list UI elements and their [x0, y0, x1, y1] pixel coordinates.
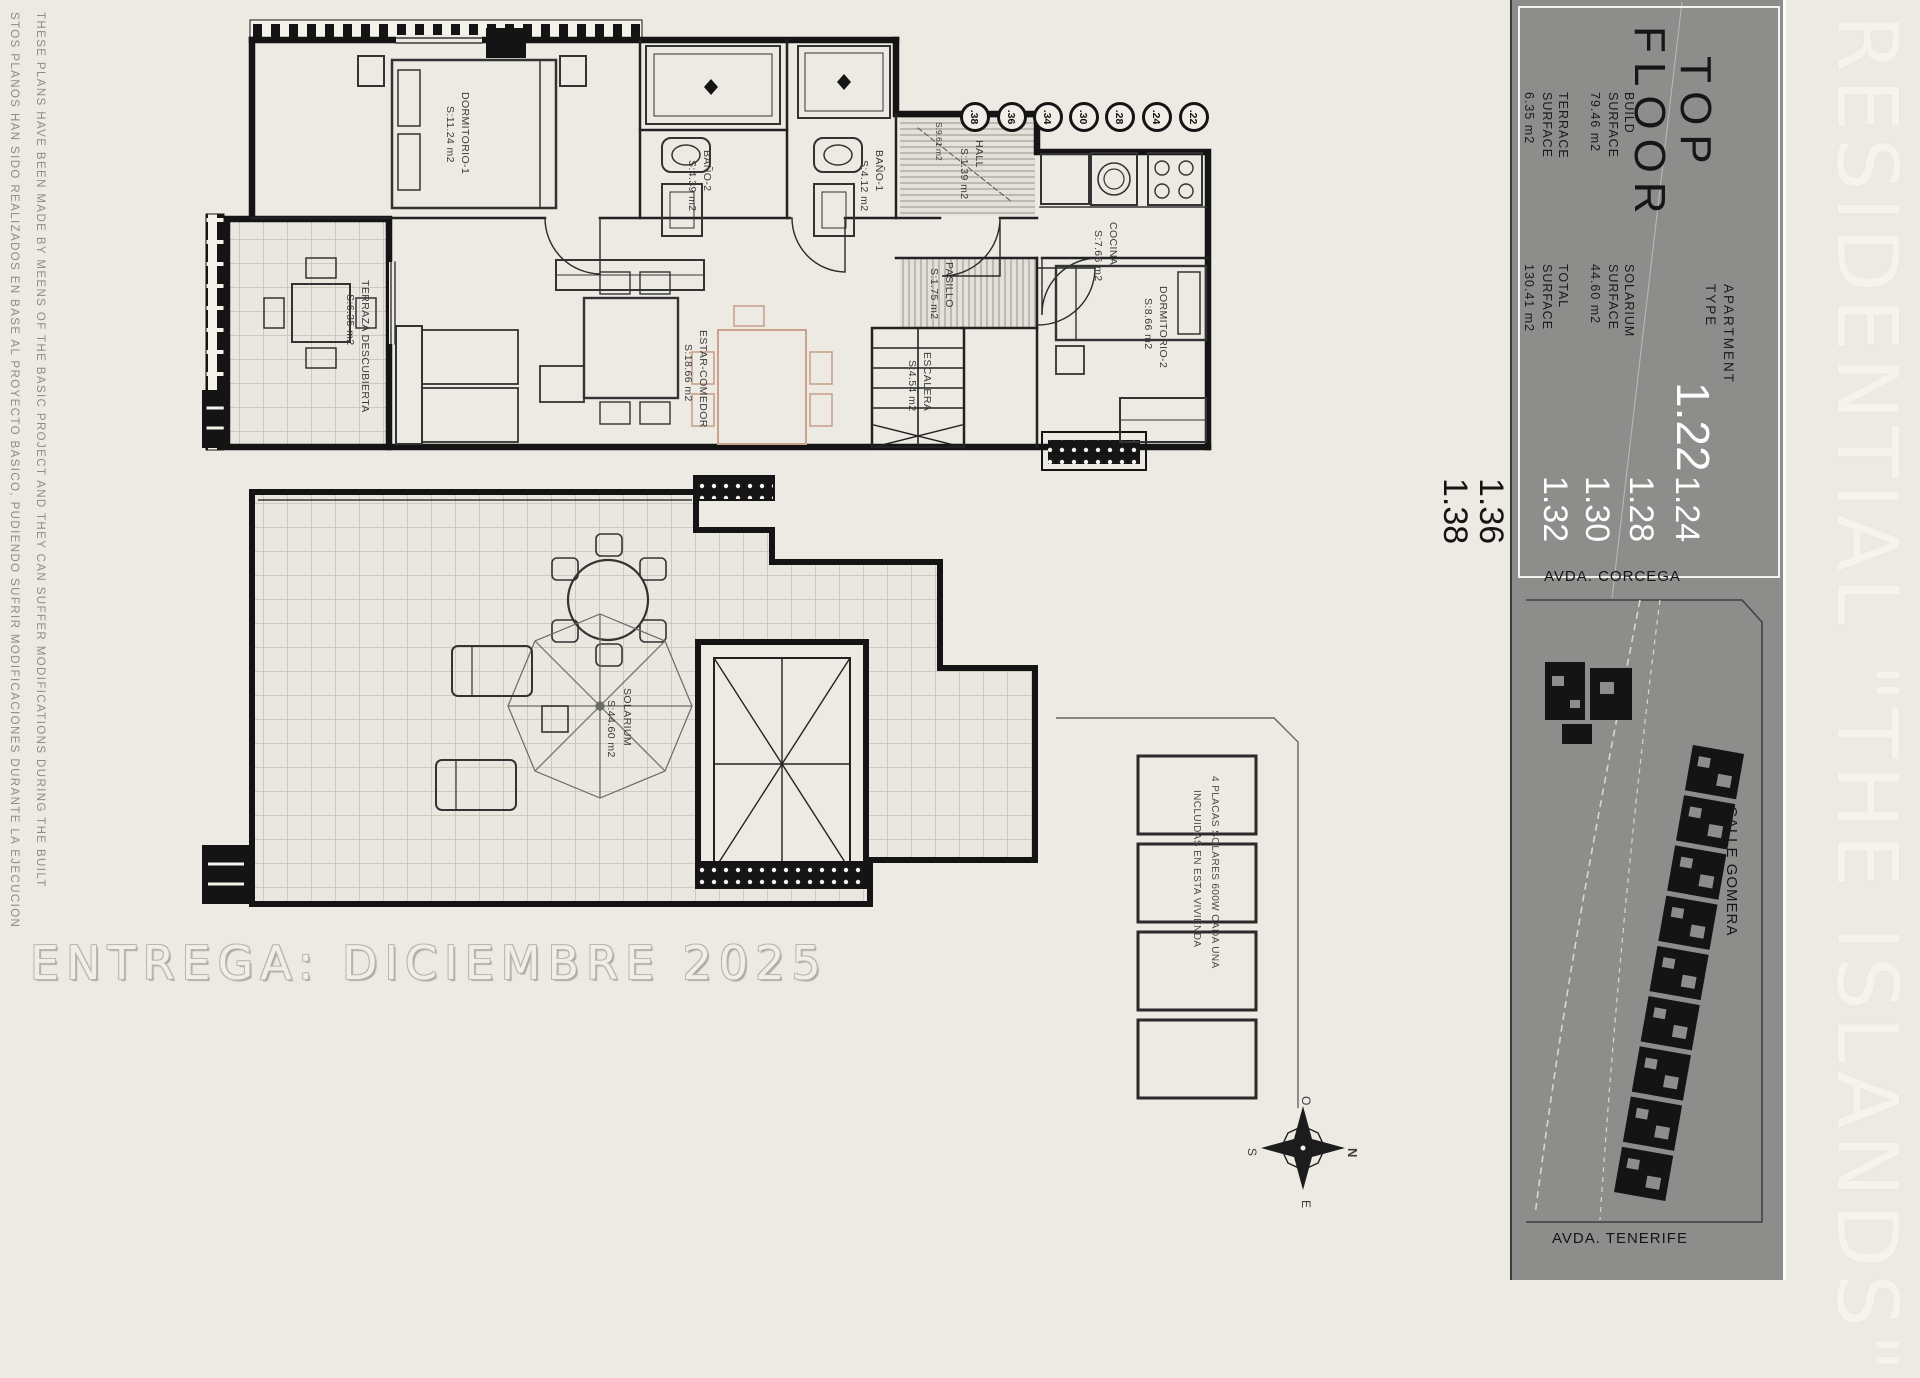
living-furniture: [396, 260, 704, 444]
metric-label: SURFACE: [1606, 92, 1620, 158]
metric-label: SURFACE: [1540, 92, 1554, 158]
room-label: SOLARIUM: [621, 688, 633, 746]
info-box: APARTMENT TYPE TOP FLOOR 1.22 1.24 1.28 …: [1518, 6, 1782, 578]
bed-dormitorio2: [1056, 266, 1206, 442]
room-label: PASILLO: [943, 262, 955, 308]
type-number: 1.28: [1621, 476, 1660, 542]
metric-value: 44.60 m2: [1588, 264, 1602, 324]
room-label: COCINA: [1107, 222, 1119, 265]
type-number: 1.36: [1471, 478, 1510, 544]
kitchen-units: [1040, 153, 1206, 207]
site-buildings-top: [1545, 662, 1632, 744]
apartment-type-label: TYPE: [1703, 284, 1718, 327]
solar-note-line2: INCLUIDAS EN ESTA VIVIENDA: [1191, 790, 1202, 947]
unit-circle-label: .22: [1187, 110, 1199, 125]
type-number: 1.24: [1667, 476, 1706, 542]
compass-e: E: [1299, 1200, 1313, 1208]
level-label: S:9.61 m2: [934, 122, 944, 161]
parasol: [508, 614, 692, 798]
street-label-gomera: CALLE GOMERA: [1723, 806, 1740, 936]
room-label: BAÑO-1: [873, 150, 886, 192]
residential-banner: RESIDENTIAL "THE ISLANDS": [1782, 14, 1916, 1284]
roof-plan: SOLARIUM S:44.60 m2 4 PLACAS SOLARES 600…: [202, 476, 1298, 1108]
bed-dormitorio1: [358, 56, 586, 208]
metric-label: SOLARIUM: [1622, 264, 1636, 337]
room-label: BAÑO-2: [701, 150, 714, 192]
bano1-fixtures: [798, 46, 890, 236]
solar-panel: [1138, 1020, 1256, 1098]
room-area: S:8.66 m2: [1142, 298, 1154, 349]
room-label: DORMITORIO-1: [459, 92, 471, 174]
street-label-corcega: AVDA. CORCEGA: [1544, 568, 1681, 585]
room-area: S:7.66 m2: [1092, 230, 1104, 281]
metric-label: SURFACE: [1540, 264, 1554, 330]
disclaimer-spanish: STOS PLANOS HAN SIDO REALIZADOS EN BASE …: [8, 12, 20, 882]
floor-title-line1: TOP: [1670, 56, 1720, 173]
type-number-primary: 1.22: [1666, 382, 1720, 472]
bano2-fixtures: [646, 46, 780, 236]
unit-circle-label: .30: [1077, 110, 1089, 125]
type-number: 1.30: [1577, 476, 1616, 542]
chimney-block: [486, 28, 526, 58]
room-label: ESTAR-COMEDOR: [697, 330, 709, 428]
metric-label: TERRACE: [1556, 92, 1570, 159]
unit-circle-label: .24: [1150, 110, 1162, 125]
metric-value: 130.41 m2: [1522, 264, 1536, 332]
top-floor-plan: .38 .36 .34 .30 .28 .24 .22 DORMITORIO-1…: [202, 20, 1208, 470]
solar-note-line1: 4 PLACAS SOLARES 600W CADA UNA: [1209, 776, 1220, 969]
stair-head-band: [694, 476, 774, 500]
room-area: S:4.12 m2: [858, 160, 870, 211]
solarium-floor: [252, 492, 1035, 904]
delivery-date: ENTREGA: DICIEMBRE 2025: [30, 936, 828, 990]
room-area: S:1.75 m2: [928, 268, 940, 319]
type-numbers-black: 1.36 1.38: [1438, 478, 1510, 573]
unit-circle-label: .34: [1041, 110, 1053, 125]
unit-circle-label: .36: [1005, 110, 1017, 125]
unit-circle-label: .38: [968, 110, 980, 125]
solar-panel-legend: 4 PLACAS SOLARES 600W CADA UNA INCLUIDAS…: [1056, 718, 1298, 1108]
street-label-tenerife: AVDA. TENERIFE: [1552, 1230, 1688, 1247]
type-number: 1.38: [1435, 478, 1474, 544]
roof-stairwell: [698, 642, 866, 886]
compass-rose: N E S O: [1245, 1096, 1360, 1208]
dining-set-tan: [692, 306, 832, 444]
room-area: S:11.24 m2: [444, 106, 456, 163]
room-area: S:18.66 m2: [682, 344, 694, 402]
disclaimer-english: THESE PLANS HAVE BEEN MADE BY MEENS OF T…: [34, 12, 46, 882]
room-area: S:1.39 m2: [958, 148, 970, 199]
type-number: 1.32: [1535, 476, 1574, 542]
metric-label: TOTAL: [1556, 264, 1570, 308]
floorplan-sheet: { "disclaimer": { "english": "THESE PLAN…: [0, 0, 1920, 1280]
room-label: DORMITORIO-2: [1157, 286, 1169, 368]
apartment-label: APARTMENT: [1721, 284, 1736, 384]
step-block-roof: [202, 845, 250, 904]
room-area: S:44.60 m2: [605, 700, 617, 758]
metric-label: SURFACE: [1606, 264, 1620, 330]
room-labels: DORMITORIO-1 S:11.24 m2 BAÑO-2 S:4.39 m2…: [344, 92, 1169, 428]
compass-n: N: [1345, 1148, 1360, 1157]
metric-value: 6.35 m2: [1522, 92, 1536, 144]
unit-circle-label: .28: [1113, 110, 1125, 125]
compass-o: O: [1299, 1096, 1313, 1105]
room-label: TERRAZA DESCUBIERTA: [359, 280, 371, 413]
metric-value: 79.46 m2: [1588, 92, 1602, 152]
room-area: S:4.39 m2: [686, 160, 698, 211]
room-area: S:4.54 m2: [906, 360, 918, 411]
metric-label: BUILD: [1622, 92, 1636, 134]
compass-s: S: [1245, 1148, 1259, 1156]
room-label: HALL: [973, 140, 985, 168]
room-label: ESCALERA: [921, 352, 933, 411]
